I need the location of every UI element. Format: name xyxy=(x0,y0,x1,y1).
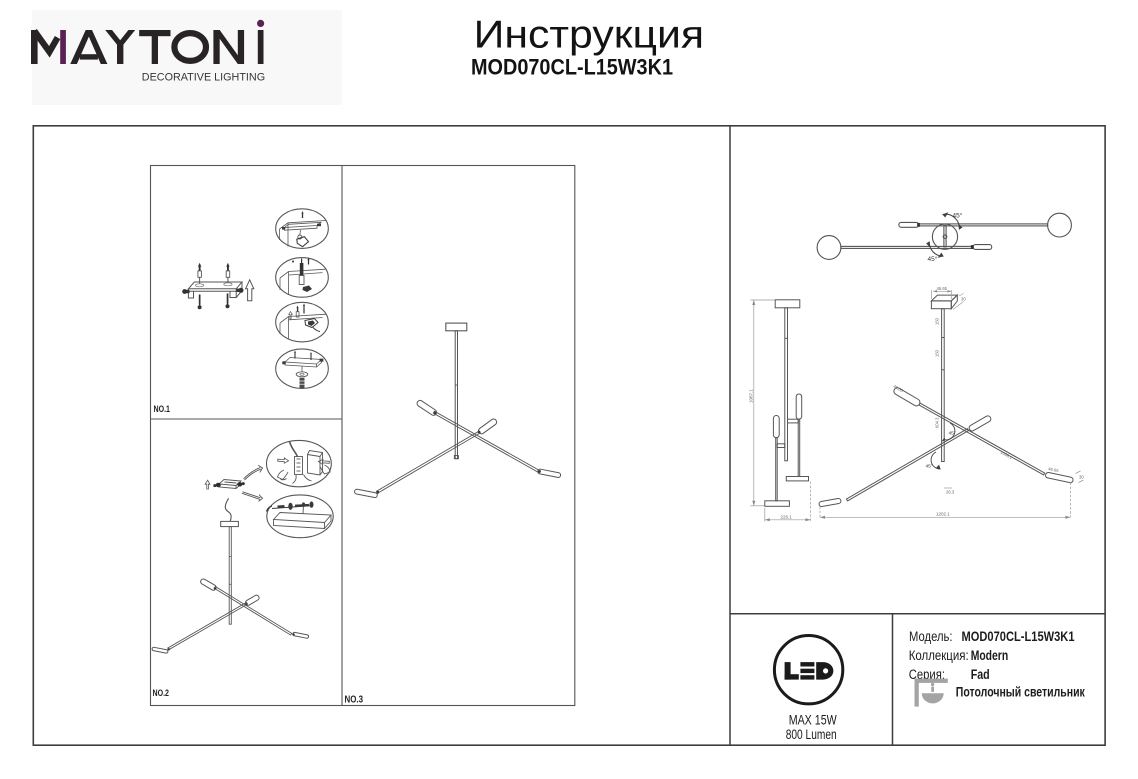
svg-text:Модель:: Модель: xyxy=(909,629,953,644)
svg-text:Modern: Modern xyxy=(971,648,1009,663)
svg-text:45°: 45° xyxy=(949,431,956,437)
svg-text:150: 150 xyxy=(935,349,940,357)
svg-text:1008.1: 1008.1 xyxy=(1000,450,1014,461)
svg-text:Потолочный светильник: Потолочный светильник xyxy=(956,685,1085,700)
svg-text:45°: 45° xyxy=(928,255,938,263)
svg-text:46.65: 46.65 xyxy=(937,286,948,291)
svg-text:604.3: 604.3 xyxy=(935,417,940,428)
svg-text:Инструкция: Инструкция xyxy=(474,14,705,57)
svg-text:NO.3: NO.3 xyxy=(345,695,364,706)
svg-text:MOD070CL-L15W3K1: MOD070CL-L15W3K1 xyxy=(471,55,673,80)
svg-text:NO.1: NO.1 xyxy=(154,404,171,415)
svg-text:Fad: Fad xyxy=(971,667,990,682)
svg-text:26.3: 26.3 xyxy=(946,490,955,495)
svg-text:DECORATIVE LIGHTING: DECORATIVE LIGHTING xyxy=(142,72,265,84)
svg-text:45°: 45° xyxy=(953,212,963,220)
svg-text:800 Lumen: 800 Lumen xyxy=(786,727,837,742)
svg-text:1202.1: 1202.1 xyxy=(936,512,950,517)
svg-text:46.65: 46.65 xyxy=(893,384,905,394)
svg-text:45°: 45° xyxy=(926,464,933,470)
svg-text:MOD070CL-L15W3K1: MOD070CL-L15W3K1 xyxy=(962,629,1075,644)
svg-text:150: 150 xyxy=(935,317,940,325)
svg-text:NO.2: NO.2 xyxy=(153,688,170,699)
svg-text:Коллекция:: Коллекция: xyxy=(909,648,969,663)
svg-text:30: 30 xyxy=(961,297,966,302)
svg-text:226.1: 226.1 xyxy=(781,514,793,519)
svg-text:30: 30 xyxy=(1079,475,1084,480)
svg-text:1087.1: 1087.1 xyxy=(748,389,753,403)
svg-text:MAX 15W: MAX 15W xyxy=(789,713,837,728)
